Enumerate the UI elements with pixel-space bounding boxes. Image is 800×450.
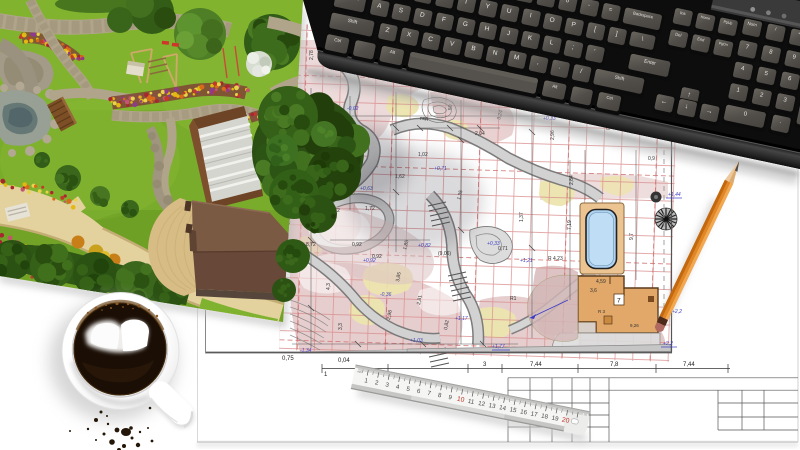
svg-text:0,04: 0,04 <box>338 358 350 364</box>
svg-text:+1,17: +1,17 <box>455 316 468 322</box>
svg-text:0,9: 0,9 <box>648 156 655 162</box>
svg-text:R 4,23: R 4,23 <box>548 256 563 262</box>
svg-text:пкд: пкд <box>420 116 428 122</box>
svg-text:3,3: 3,3 <box>338 323 344 330</box>
svg-text:4,59: 4,59 <box>596 279 606 285</box>
svg-text:+1,44: +1,44 <box>668 192 681 198</box>
svg-text:-0,02: -0,02 <box>347 106 359 112</box>
svg-text:+2,2: +2,2 <box>663 341 673 347</box>
svg-text:0,75: 0,75 <box>282 356 294 362</box>
svg-text:1,37: 1,37 <box>519 212 525 222</box>
svg-text:7,44: 7,44 <box>683 362 695 368</box>
svg-text:9,7: 9,7 <box>629 233 635 240</box>
svg-text:+1,21: +1,21 <box>520 258 533 264</box>
svg-text:7,44: 7,44 <box>530 362 542 368</box>
svg-text:2,84: 2,84 <box>569 175 575 185</box>
svg-text:7: 7 <box>617 298 621 305</box>
svg-text:(9,06): (9,06) <box>438 251 451 257</box>
svg-text:10: 10 <box>456 396 465 404</box>
svg-text:-1,34: -1,34 <box>300 348 312 354</box>
svg-text:2,78: 2,78 <box>309 50 315 60</box>
svg-text:20: 20 <box>561 417 570 425</box>
svg-text:→: → <box>705 107 713 115</box>
svg-text:R 3: R 3 <box>598 309 606 314</box>
svg-text:+2,2: +2,2 <box>672 309 682 315</box>
svg-text:4,3: 4,3 <box>326 283 332 290</box>
svg-text:+0,92: +0,92 <box>363 258 376 264</box>
svg-text:7,8: 7,8 <box>610 362 619 368</box>
svg-text:R1: R1 <box>510 296 517 302</box>
svg-text:+1,03: +1,03 <box>410 338 423 344</box>
svg-text:2,04: 2,04 <box>475 131 485 137</box>
svg-text:7,19: 7,19 <box>567 220 573 230</box>
svg-text:9,26: 9,26 <box>630 323 639 328</box>
svg-text:←: ← <box>660 98 668 106</box>
svg-text:0,92: 0,92 <box>352 242 362 248</box>
svg-text:+1,77: +1,77 <box>492 344 505 350</box>
svg-text:+0,33: +0,33 <box>487 241 500 247</box>
svg-text:8,72: 8,72 <box>306 242 316 248</box>
svg-text:-0,36: -0,36 <box>380 292 392 298</box>
svg-text:3,6: 3,6 <box>590 288 597 294</box>
